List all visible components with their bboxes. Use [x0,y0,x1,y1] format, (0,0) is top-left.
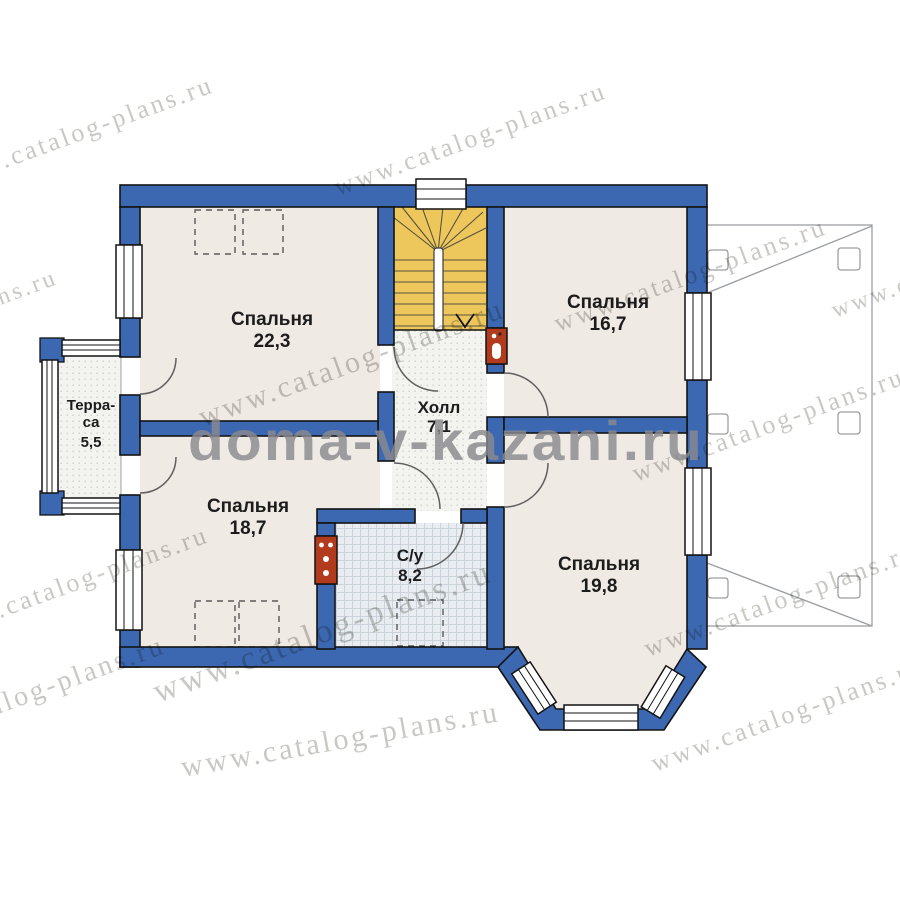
wall-left [120,318,140,357]
window [564,705,638,730]
room-label: Спальня [207,496,289,517]
watermark-tile: www.catalog-plans.ru [828,207,900,324]
room-area: 22,3 [254,331,291,352]
chimney-flue [486,328,507,364]
roof-post [838,412,860,434]
window [685,468,711,555]
window [685,293,711,380]
roof-post [708,578,728,598]
wall-interior [378,207,394,345]
room-label: С/у [397,546,424,565]
window [416,179,466,209]
watermark-tile: www.catalog-plans.ru [178,695,502,784]
room-area: 18,7 [230,518,267,539]
wall-top-right [466,185,707,207]
room-label: Терра- [67,397,115,414]
wall-interior [317,523,335,536]
roof-post [838,248,860,270]
wall-left [120,395,140,455]
wall-left [120,495,140,550]
window [62,340,120,356]
watermark-tile: www.catalog-plans.ru [330,76,610,202]
room-label: Спальня [231,309,313,330]
wall-interior [487,364,504,373]
room-area: 19,8 [581,576,618,597]
watermark-tile: www.catalog-plans.ru [0,70,218,196]
wall-left [120,207,140,245]
room-label: са [83,414,101,431]
watermark-tile: www.catalog-plans.ru [0,630,169,764]
room-area: 5,5 [81,434,102,451]
wall-interior [317,509,415,523]
window [116,245,142,318]
window [62,498,120,514]
terrace-post [40,338,64,362]
chimney-flue [315,536,337,584]
floor-plan-page: Спальня 22,3 Спальня 16,7 Холл 7,1 Спаль… [0,0,900,900]
window [42,360,58,493]
watermark-site: doma-v-kazani.ru [188,409,704,472]
room-label: Спальня [558,554,640,575]
terrace-post [40,491,64,515]
wall-interior [461,509,487,523]
floor-plan-drawing: Спальня 22,3 Спальня 16,7 Холл 7,1 Спаль… [0,0,900,900]
